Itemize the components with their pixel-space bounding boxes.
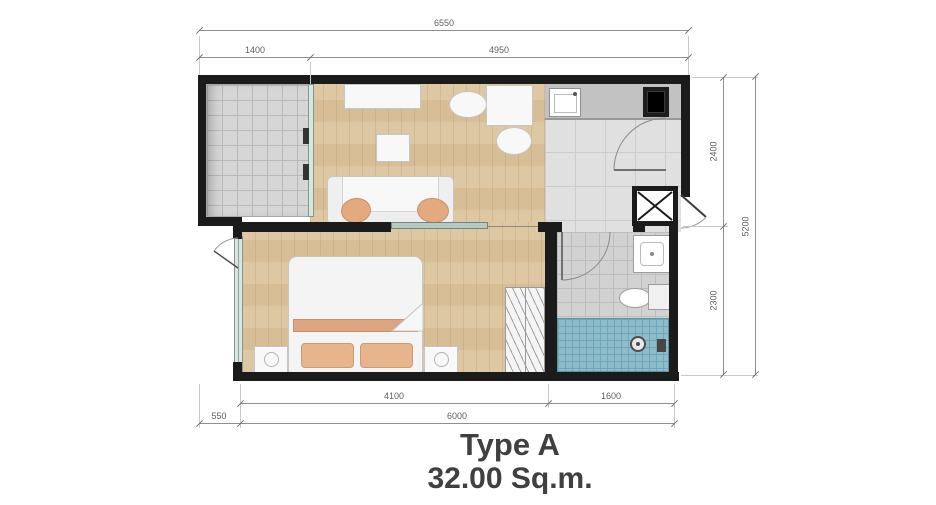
wall-bed-bath-divider xyxy=(545,228,557,381)
dim-top-main: 4950 xyxy=(479,45,519,56)
dim-top-balcony: 1400 xyxy=(235,45,275,56)
wardrobe-divider xyxy=(525,288,526,372)
wall-right-upper xyxy=(681,75,690,197)
dim-bottom-offset: 550 xyxy=(199,411,239,422)
wall-partition-left xyxy=(233,222,391,232)
dim-line-bottom-split xyxy=(240,403,674,404)
dim-line-top-split xyxy=(199,57,688,58)
dining-table xyxy=(486,85,533,126)
kitchen-stove xyxy=(643,87,669,117)
unit-type-title: Type A xyxy=(340,428,680,462)
lamp-icon xyxy=(264,352,279,367)
extension-line xyxy=(310,62,311,84)
floor-plan-canvas: 6550 1400 4950 2400 2300 5200 4100 1600 … xyxy=(0,0,936,505)
balcony-floor xyxy=(206,84,310,217)
sliding-door-handle-icon xyxy=(303,164,309,180)
entrance-door-leaf xyxy=(681,195,706,217)
dim-tick xyxy=(685,27,692,34)
wall-bedroom-left-top xyxy=(233,222,242,239)
balcony-sliding-door xyxy=(308,84,314,217)
sofa-armrest-left xyxy=(328,177,343,224)
bed-pillow-right xyxy=(360,343,413,368)
title-block: Type A 32.00 Sq.m. xyxy=(340,428,680,495)
coffee-table xyxy=(376,134,410,162)
dim-right-upper: 2400 xyxy=(709,132,720,172)
dim-top-total: 6550 xyxy=(424,18,464,29)
bed-blanket-stripe xyxy=(293,319,418,332)
shower-floor xyxy=(557,318,669,372)
dim-line-right-total xyxy=(755,77,756,375)
dim-line-bottom-total xyxy=(199,423,674,424)
toilet-tank xyxy=(648,284,670,310)
washbasin xyxy=(633,235,671,273)
nightstand-right xyxy=(424,346,458,373)
dining-chair-left xyxy=(449,91,487,118)
wall-right-lower xyxy=(669,222,678,381)
dim-bottom-bedroom: 4100 xyxy=(374,391,414,402)
dim-line-top-total xyxy=(199,30,689,31)
wardrobe xyxy=(505,287,545,373)
dim-bottom-bathroom: 1600 xyxy=(591,391,631,402)
dim-right-lower: 2300 xyxy=(709,281,720,321)
extension-line xyxy=(692,77,758,78)
dining-chair-bottom xyxy=(496,127,532,155)
wall-bedroom-left-bottom xyxy=(233,362,242,381)
toilet-bowl xyxy=(619,288,651,308)
unit-area-title: 32.00 Sq.m. xyxy=(340,462,680,495)
nightstand-left xyxy=(254,346,288,373)
service-shaft xyxy=(632,186,678,226)
lamp-icon xyxy=(434,352,449,367)
sliding-partition-panel xyxy=(391,222,488,229)
window-mullion xyxy=(238,237,239,371)
shower-head-icon xyxy=(630,336,646,352)
dim-bottom-total: 6000 xyxy=(437,411,477,422)
basin-drain-icon xyxy=(650,252,654,256)
dim-right-total: 5200 xyxy=(741,207,752,247)
bedroom-window xyxy=(234,236,243,372)
sliding-door-handle-icon xyxy=(303,128,309,144)
double-bed xyxy=(288,256,423,373)
wall-bottom xyxy=(233,372,679,381)
sink-faucet-icon xyxy=(573,92,577,96)
tv-console xyxy=(344,84,421,109)
shower-nozzle-icon xyxy=(636,342,640,346)
kitchen-sink xyxy=(549,88,581,117)
stove-top xyxy=(647,91,665,113)
sink-basin xyxy=(554,94,577,113)
wall-top xyxy=(198,75,690,84)
bed-pillow-left xyxy=(301,343,354,368)
wall-balcony-left xyxy=(198,75,206,226)
shower-valve-icon xyxy=(657,339,666,352)
